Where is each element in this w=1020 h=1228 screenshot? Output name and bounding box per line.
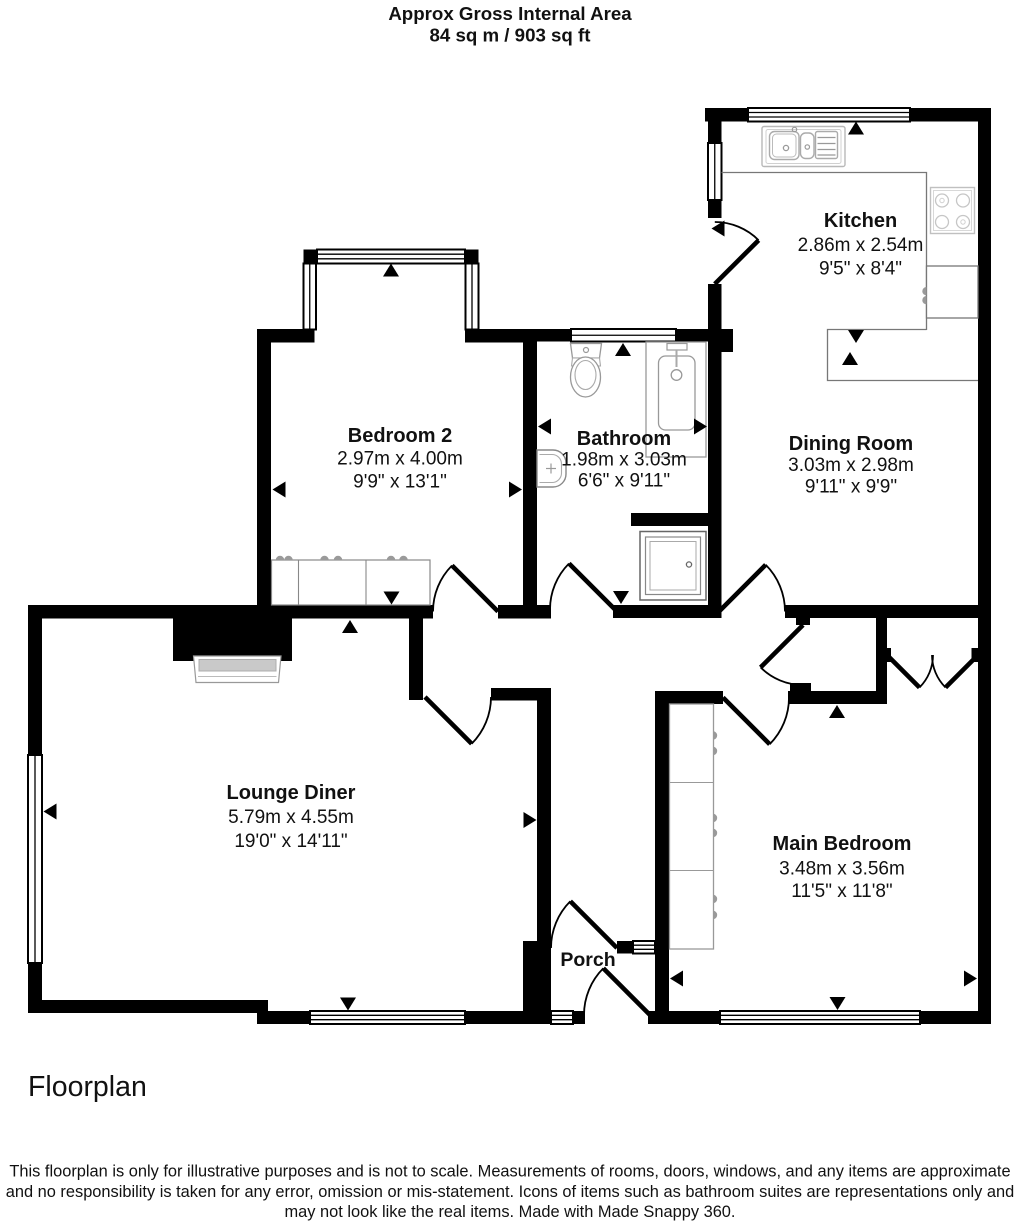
svg-text:and no responsibility is taken: and no responsibility is taken for any e… — [6, 1183, 1015, 1201]
svg-text:2.86m x 2.54m: 2.86m x 2.54m — [798, 235, 924, 256]
svg-text:Bathroom: Bathroom — [577, 428, 671, 450]
svg-text:84 sq m / 903 sq ft: 84 sq m / 903 sq ft — [430, 25, 591, 46]
svg-text:2.97m x 4.00m: 2.97m x 4.00m — [337, 449, 463, 470]
svg-text:Kitchen: Kitchen — [824, 210, 897, 232]
svg-text:Dining Room: Dining Room — [789, 433, 913, 455]
svg-text:9'5" x 8'4": 9'5" x 8'4" — [819, 259, 902, 280]
svg-text:Main Bedroom: Main Bedroom — [773, 833, 912, 855]
svg-text:3.03m x 2.98m: 3.03m x 2.98m — [788, 455, 914, 476]
svg-text:Floorplan: Floorplan — [28, 1071, 147, 1103]
svg-text:11'5" x 11'8": 11'5" x 11'8" — [791, 881, 892, 902]
svg-text:9'9" x 13'1": 9'9" x 13'1" — [353, 472, 447, 493]
svg-text:Bedroom 2: Bedroom 2 — [348, 425, 452, 447]
svg-text:Porch: Porch — [560, 949, 615, 971]
svg-text:This floorplan is only for ill: This floorplan is only for illustrative … — [9, 1163, 1010, 1181]
svg-text:5.79m x 4.55m: 5.79m x 4.55m — [228, 807, 354, 828]
svg-text:9'11" x 9'9": 9'11" x 9'9" — [805, 477, 897, 498]
svg-text:1.98m x 3.03m: 1.98m x 3.03m — [561, 450, 687, 471]
svg-text:19'0" x 14'11": 19'0" x 14'11" — [234, 831, 347, 852]
svg-text:Approx Gross Internal Area: Approx Gross Internal Area — [388, 3, 632, 24]
svg-text:Lounge Diner: Lounge Diner — [227, 782, 356, 804]
svg-text:6'6" x 9'11": 6'6" x 9'11" — [578, 471, 670, 492]
svg-text:3.48m x 3.56m: 3.48m x 3.56m — [779, 859, 905, 880]
svg-text:may not look like the real ite: may not look like the real items. Made w… — [285, 1203, 736, 1221]
